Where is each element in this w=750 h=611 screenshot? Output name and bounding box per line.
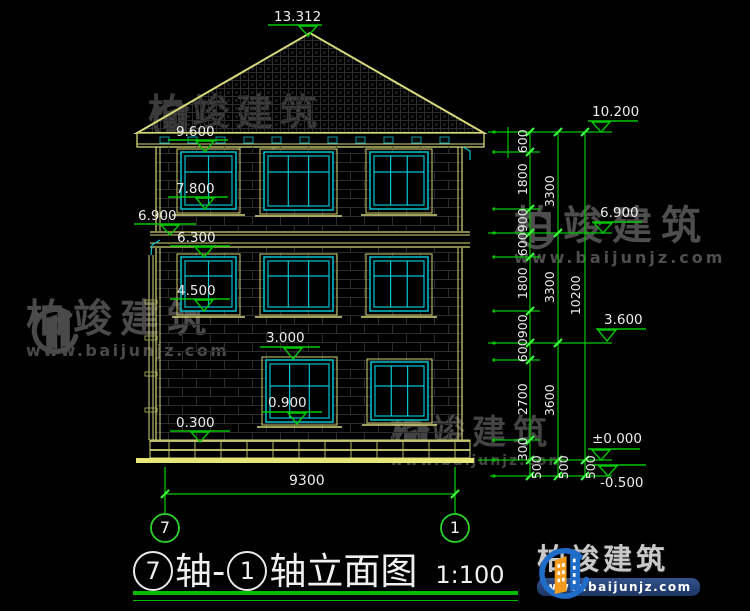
title-underline-thin	[133, 600, 518, 601]
elevation-label: ±0.000	[592, 433, 642, 447]
axis-bubble-right: 1	[440, 520, 470, 536]
window	[361, 149, 437, 215]
dim-label: 3300	[544, 169, 557, 213]
dimension-end-dots	[492, 130, 495, 477]
window	[255, 149, 342, 216]
elevation-label: 3.000	[266, 332, 305, 346]
title-underline-thick	[133, 591, 518, 595]
cad-linework	[0, 0, 750, 611]
plinth	[150, 440, 470, 458]
dim-label: 500	[585, 445, 598, 489]
dim-label: 3600	[544, 378, 557, 422]
ground-line	[136, 458, 474, 463]
elevation-label: 3.600	[604, 314, 643, 328]
window	[361, 254, 437, 317]
elevation-label: 6.900	[600, 207, 639, 221]
dim-label: 3300	[544, 265, 557, 309]
dim-label: 500	[531, 445, 544, 489]
bottom-width-label: 9300	[289, 474, 325, 488]
elevation-label: 4.500	[177, 285, 216, 299]
dim-label: 10200	[570, 273, 583, 317]
axis-bubble-left: 7	[150, 520, 180, 536]
window	[362, 359, 437, 425]
title-axis-circle: 7	[133, 551, 173, 591]
company-logo: 柏竣建筑 www.baijunjz.com	[533, 545, 700, 596]
dim-label: 500	[558, 445, 571, 489]
title-scale: 1:100	[435, 560, 504, 591]
elevation-label: 7.800	[176, 183, 215, 197]
elevation-label: -0.500	[600, 477, 644, 491]
dim-label: 1800	[517, 261, 530, 305]
window	[255, 254, 342, 317]
dim-label: 600	[517, 222, 530, 266]
elevation-label: 10.200	[592, 106, 639, 120]
dim-label: 300	[517, 427, 530, 471]
dim-label: 1800	[517, 157, 530, 201]
title-text: 轴-	[175, 553, 225, 590]
window	[257, 357, 342, 427]
company-logo-icon	[533, 545, 591, 605]
elevation-label: 0.900	[268, 397, 307, 411]
title-text: 轴立面图	[269, 553, 417, 590]
elevation-label: 6.300	[177, 232, 216, 246]
elevation-label: 6.900	[138, 210, 177, 224]
dim-label: 2700	[517, 377, 530, 421]
elevation-drawing: 柏竣建筑 www.baijunjz.com 柏竣建筑 www.baijunjz.…	[0, 0, 750, 611]
elevation-label: 0.300	[176, 417, 215, 431]
dim-label: 600	[517, 328, 530, 372]
title-axis-circle: 1	[227, 551, 267, 591]
elevation-label: 13.312	[274, 11, 321, 25]
drawing-title: 7 轴- 1 轴立面图 1:100	[133, 551, 505, 591]
elevation-label: 9.600	[176, 126, 215, 140]
